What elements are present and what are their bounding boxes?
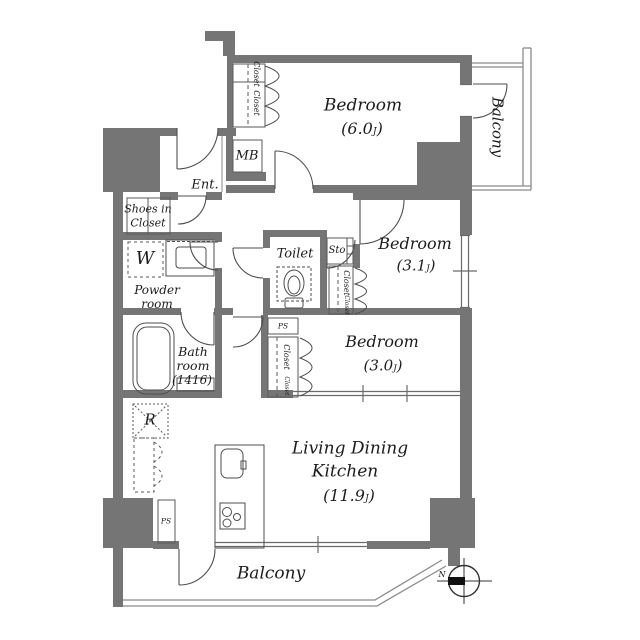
room-label-bedroom30: Bedroom: [345, 334, 419, 350]
kitchen-sink-icon: [221, 449, 243, 478]
floor-plan: Bedroom (6.0J) Bedroom (3.1J) Bedroom (3…: [0, 0, 640, 640]
room-label-ldk-line1: Living Dining: [292, 441, 408, 458]
ldk-door: [233, 317, 263, 347]
closet-mid-folding-door: [355, 268, 367, 314]
room-label-bedroom31: Bedroom: [378, 236, 452, 252]
closet-mid-label-1: Closet: [342, 270, 350, 296]
entrance-door: [177, 128, 218, 169]
powder-room-label-line1: Powder: [134, 284, 180, 296]
area-close: ): [397, 357, 403, 375]
closet-top-label-1: Closet: [252, 61, 260, 87]
room-size-bedroom31: (3.1J): [396, 259, 435, 274]
closet-top-label-2: Closet: [252, 90, 260, 116]
room-label-entrance: Ent.: [191, 179, 218, 192]
area-value: (3.0: [363, 357, 393, 375]
toilet-label: Toilet: [277, 248, 314, 261]
room-label-ldk-line2: Kitchen: [312, 464, 378, 481]
area-value: (6.0: [341, 119, 373, 138]
shoes-closet-label-line1: Shoes in: [124, 204, 172, 215]
toilet-icon: [277, 267, 311, 308]
bath-door: [181, 312, 214, 345]
toilet-door: [233, 248, 263, 278]
bathtub-icon: [133, 323, 174, 394]
bathroom-label-line3: (1416): [172, 374, 212, 386]
closet-b30-label-1: Closet: [282, 344, 290, 370]
bathroom-label-line1: Bath: [178, 346, 208, 359]
room-label-bedroom6: Bedroom: [324, 98, 402, 115]
room-label-balcony-right: Balcony: [490, 97, 505, 157]
closet-mid-label-2: Closet: [343, 295, 349, 314]
washer-label: W: [136, 250, 155, 268]
hall-door: [178, 196, 206, 224]
pipe-space-kitchen-label: PS: [161, 517, 171, 525]
area-close: ): [430, 257, 436, 275]
room-size-bedroom30: (3.0J): [363, 359, 402, 374]
compass-icon: [437, 558, 492, 604]
room-label-balcony-bottom: Balcony: [237, 566, 305, 583]
area-value: (11.9: [323, 486, 365, 505]
kitchen-counter: [215, 445, 264, 548]
closet-b30-folding-door: [300, 338, 312, 396]
ldk-balcony-door: [179, 549, 215, 585]
room-size-ldk: (11.9J): [323, 488, 375, 504]
walls: [103, 31, 475, 607]
area-value: (3.1: [396, 257, 426, 275]
shoes-closet-label-line2: Closet: [130, 218, 165, 229]
bathroom-label-line2: room: [177, 360, 210, 373]
closet-b30-label-2: Closet: [283, 376, 289, 395]
cupboard-space: [134, 438, 154, 492]
closet-top-folding-door: [265, 66, 279, 126]
refrigerator-label: R: [144, 413, 155, 428]
meter-box-label: MB: [236, 150, 259, 163]
storage-label: Sto: [329, 246, 346, 256]
compass-north-label: N: [439, 571, 446, 579]
powder-room-label-line2: room: [141, 298, 173, 310]
room-size-bedroom6: (6.0J): [341, 121, 383, 137]
area-close: ): [377, 119, 383, 138]
bedroom6-door: [275, 151, 313, 189]
pipe-space-bedroom-label: PS: [278, 322, 288, 330]
floor-plan-drawing: [0, 0, 640, 640]
area-close: ): [369, 486, 375, 505]
